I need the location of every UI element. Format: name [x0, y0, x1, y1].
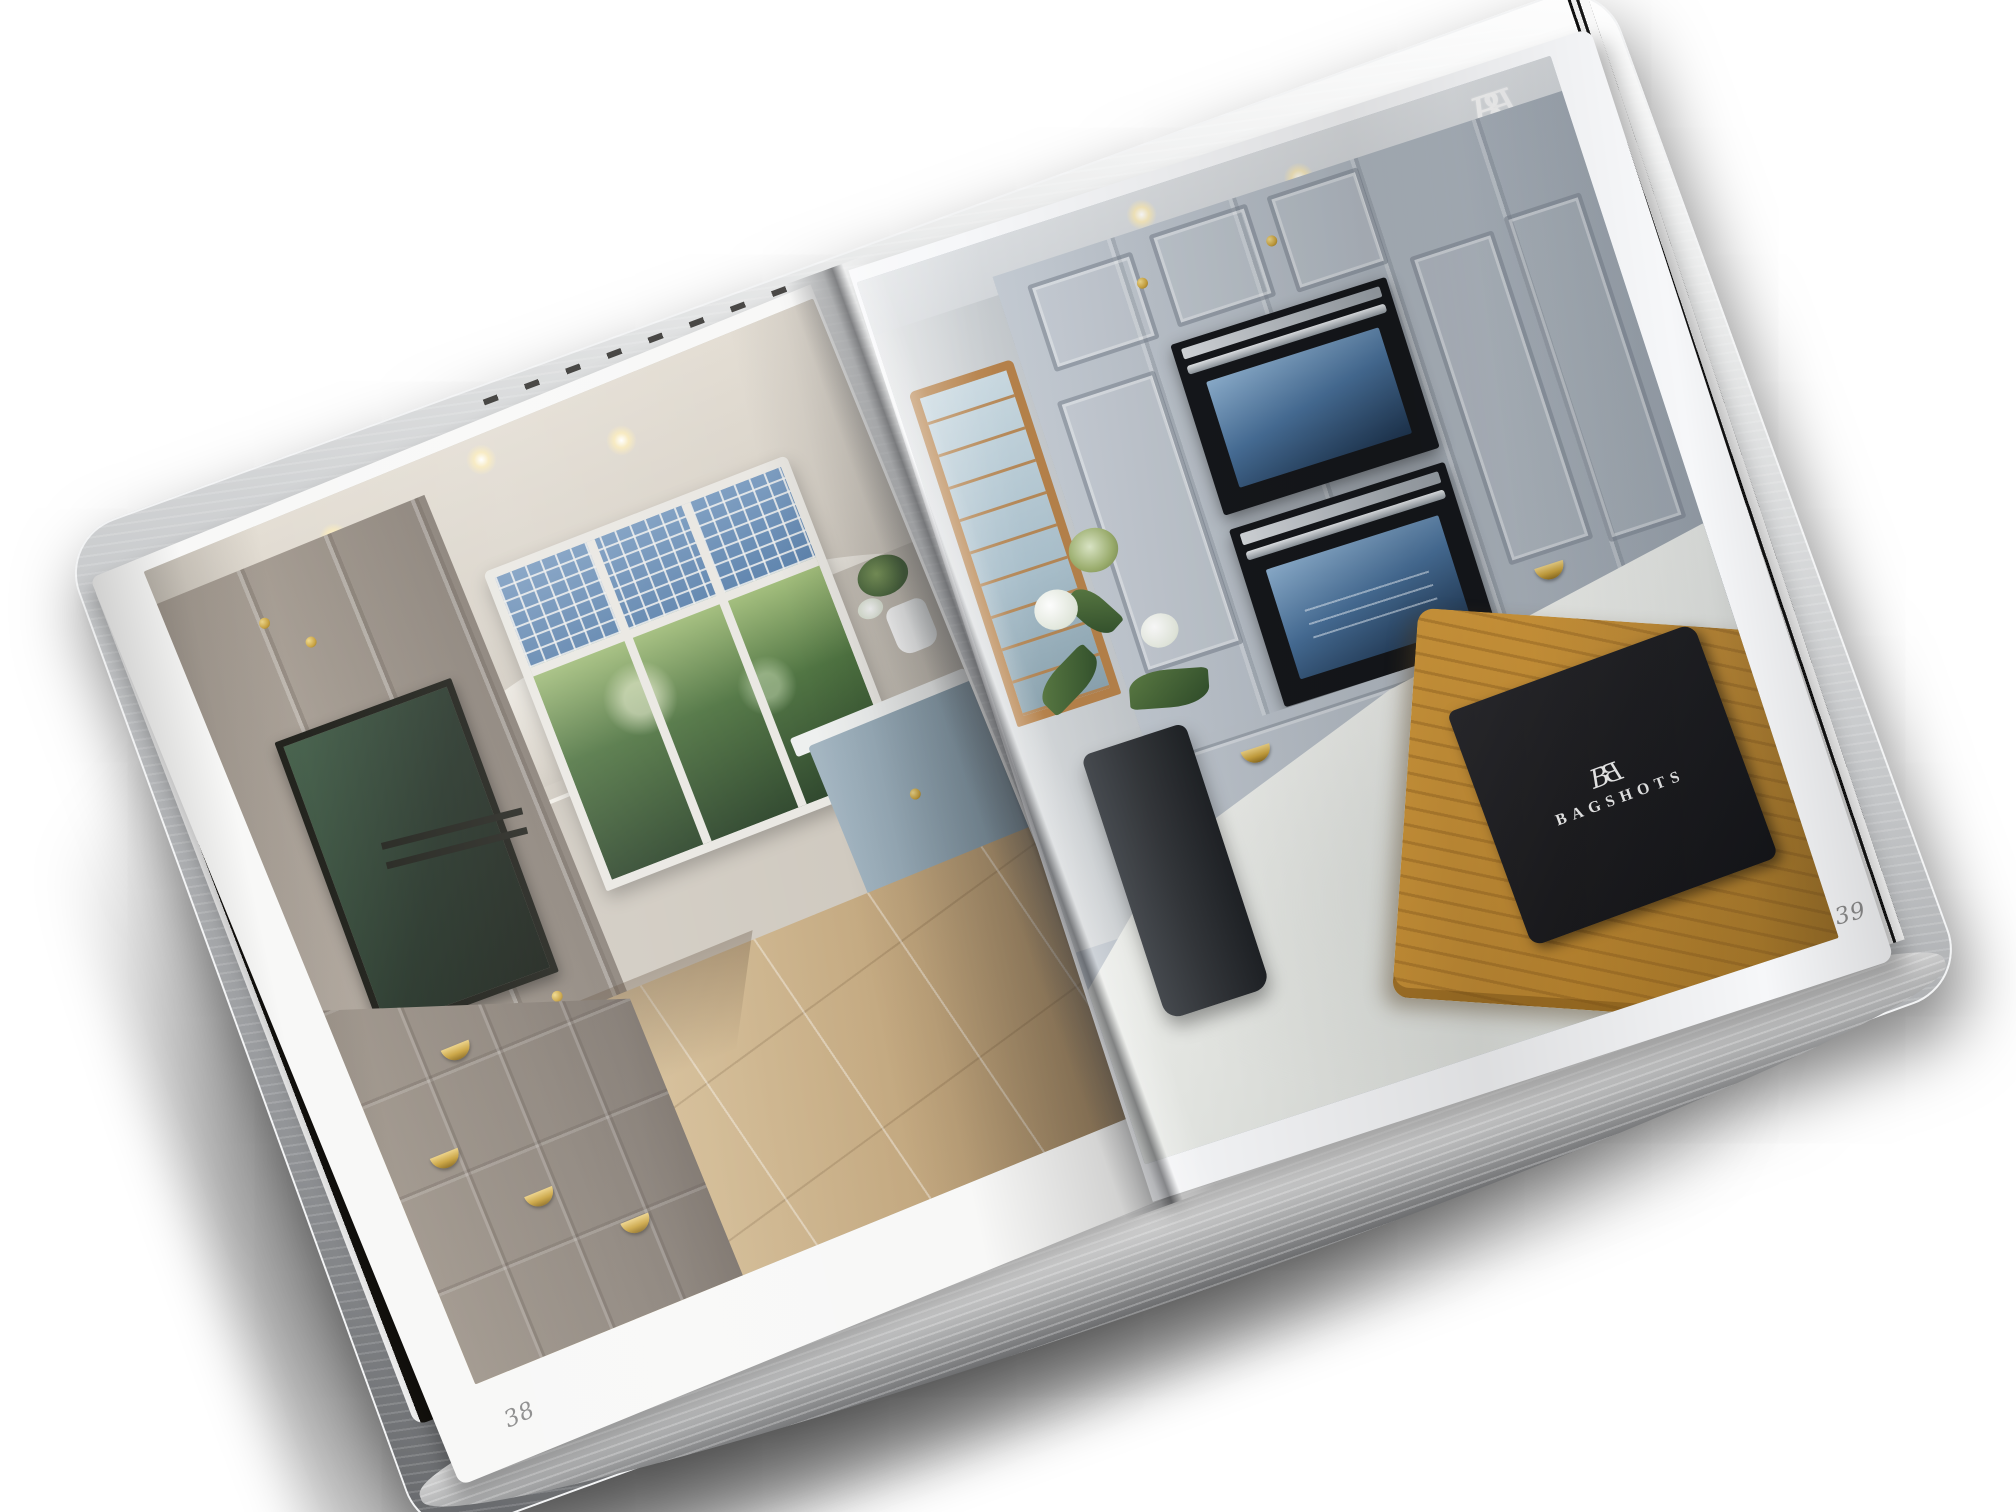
- open-brochure: 38 BB: [100, 9, 1901, 1463]
- bagshots-cloth: BB BAGSHOTS: [1447, 623, 1778, 947]
- page-number-right: 39: [1832, 897, 1869, 930]
- rp-oak-chopping-board: BB BAGSHOTS: [1392, 607, 1839, 1028]
- photo-scene: 38 BB: [0, 0, 2016, 1512]
- page-number-left: 38: [500, 1397, 539, 1434]
